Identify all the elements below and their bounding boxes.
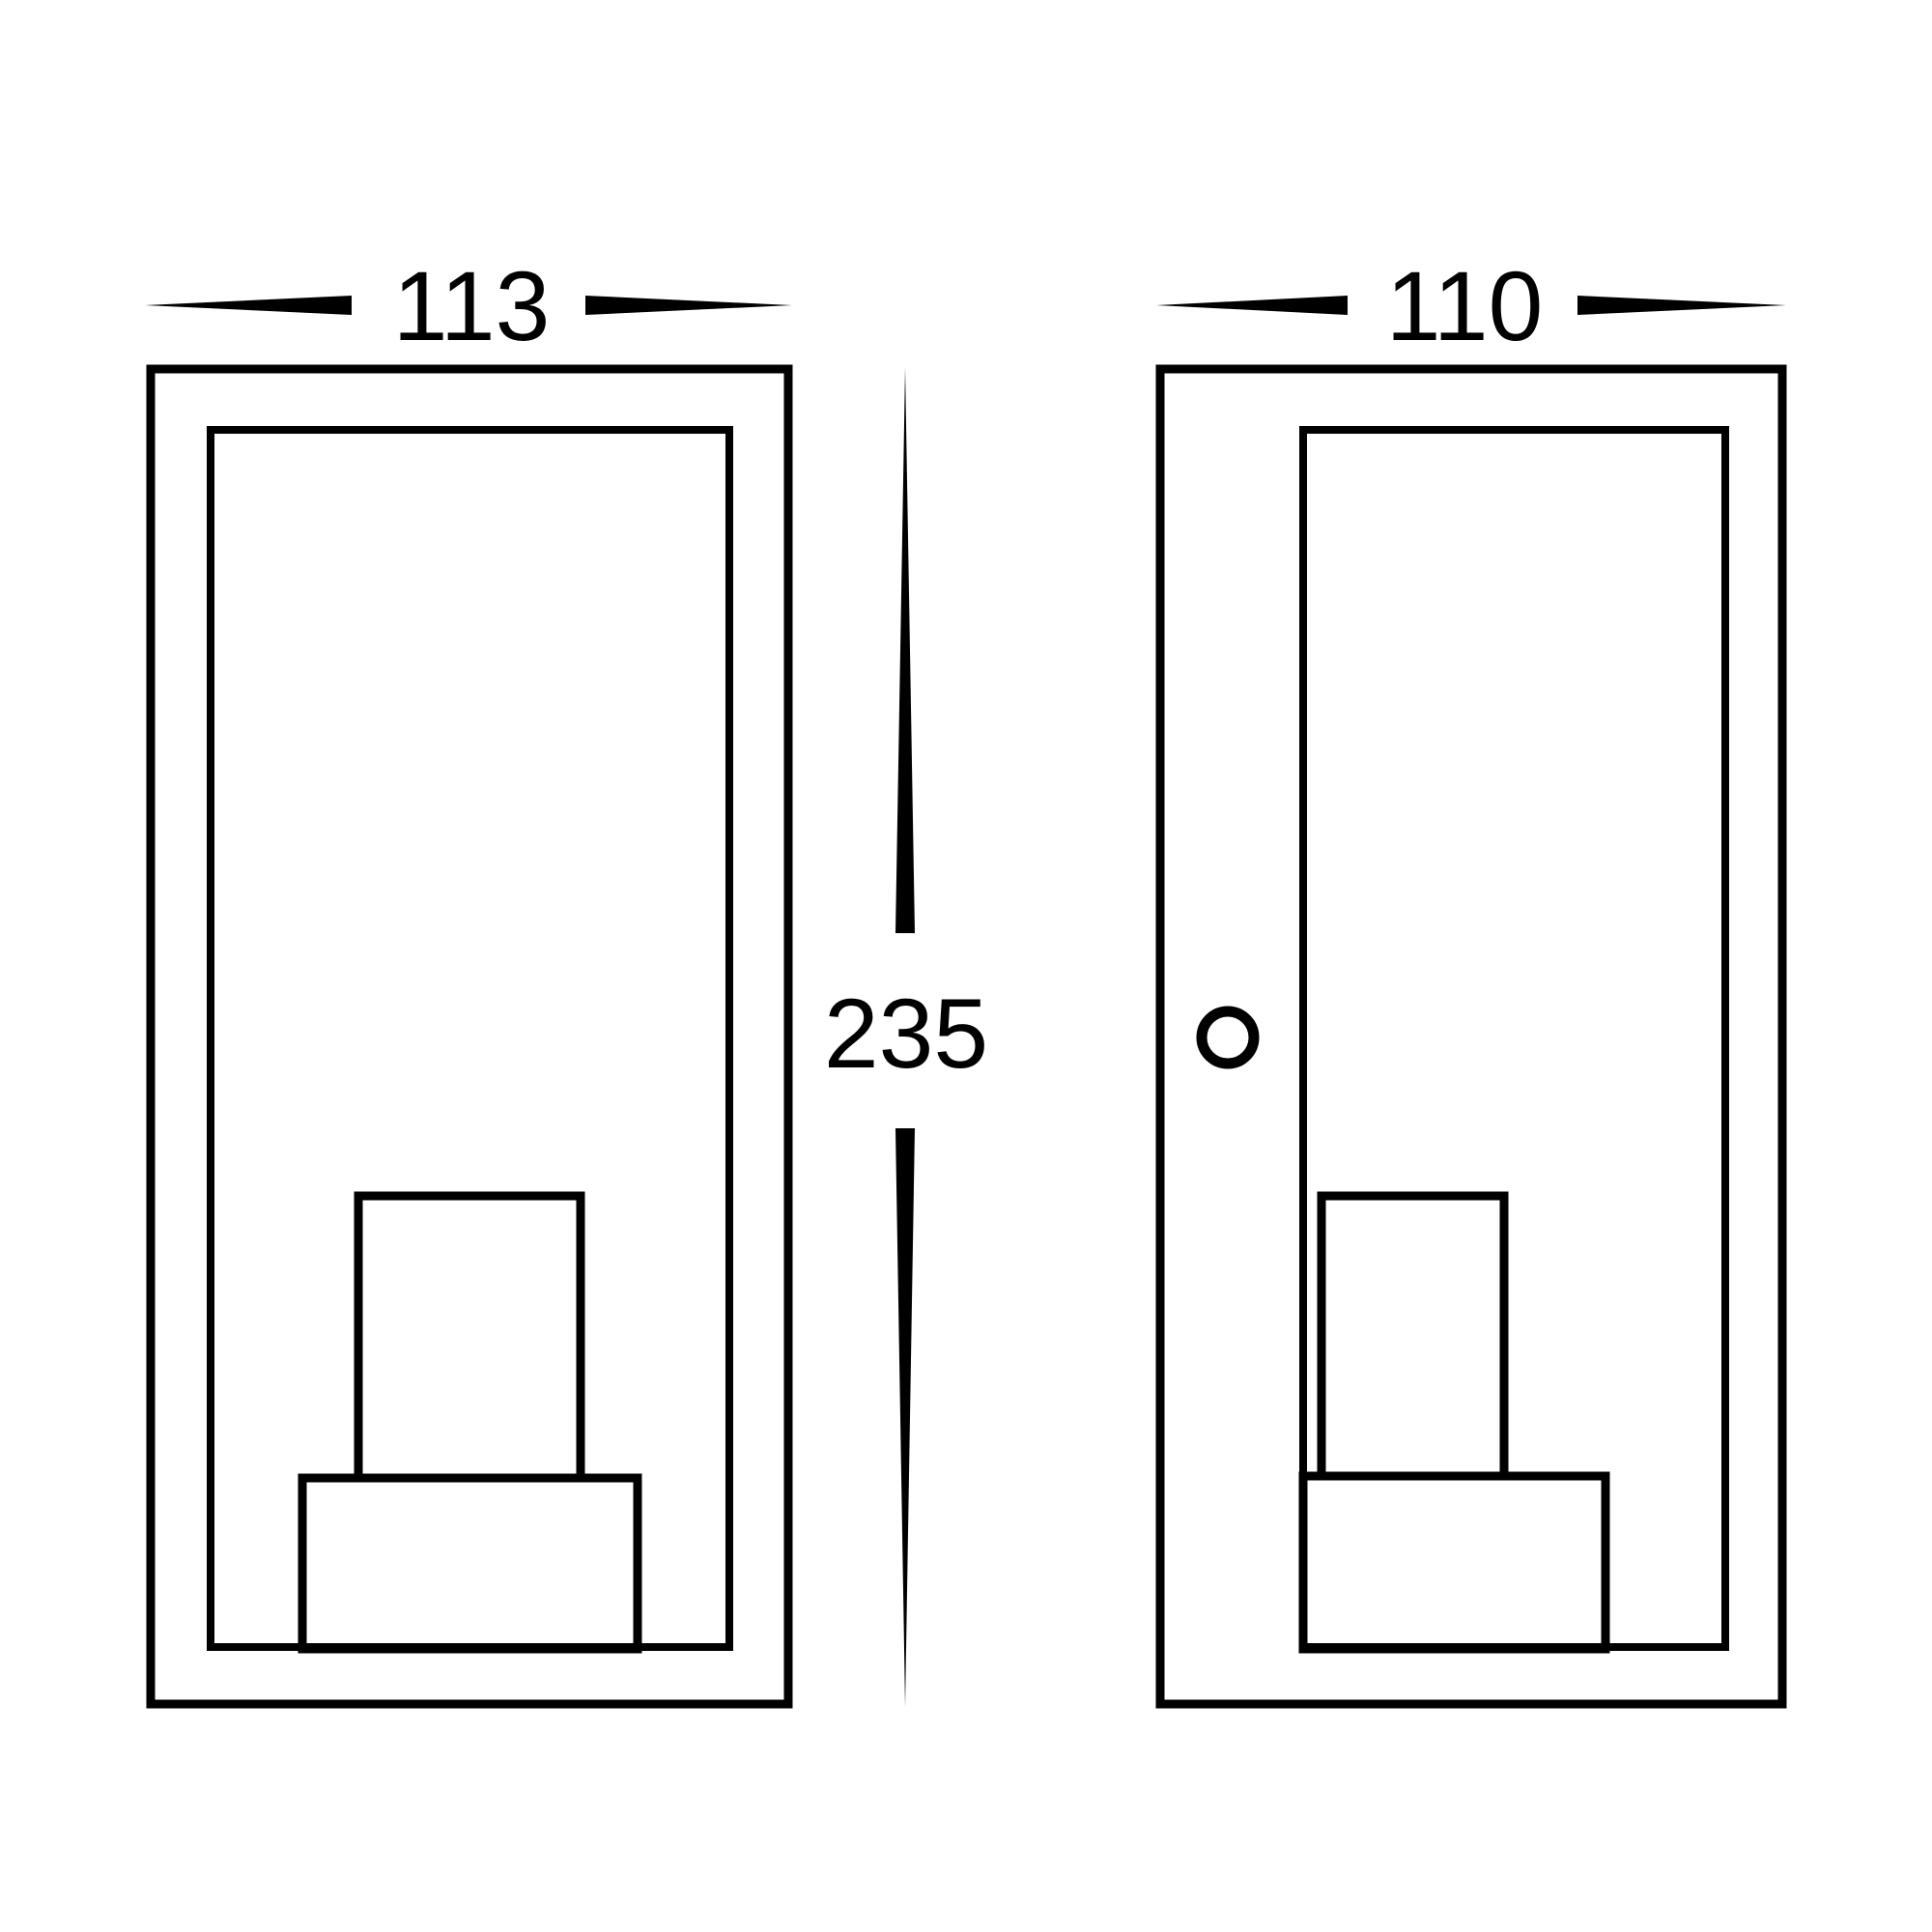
front-lamp-holder-base	[302, 1478, 638, 1649]
dimension-arrow-right	[1577, 296, 1786, 315]
front-width-value: 113	[393, 251, 551, 361]
dimension-arrow-bottom	[895, 1128, 915, 1707]
dimension-arrow-right	[585, 296, 792, 315]
side-depth-dimension: 110	[1156, 251, 1786, 361]
technical-drawing-canvas: 113 110 235	[0, 0, 1932, 1932]
front-outer-frame	[151, 369, 788, 1704]
dimension-arrow-left	[1156, 296, 1348, 315]
front-width-dimension: 113	[145, 251, 792, 361]
side-view	[1160, 369, 1782, 1704]
front-view	[151, 369, 788, 1704]
wall-light-dimension-drawing: 113 110 235	[0, 0, 1932, 1932]
height-dimension: 235	[824, 367, 988, 1707]
dimension-arrow-top	[895, 367, 915, 933]
screw-hole-icon	[1202, 1011, 1254, 1064]
height-value: 235	[824, 979, 988, 1089]
side-lamp-holder-stem	[1321, 1196, 1504, 1476]
front-inner-frame	[211, 430, 729, 1647]
dimension-arrow-left	[145, 296, 352, 315]
side-depth-value: 110	[1386, 251, 1544, 361]
front-lamp-holder-stem	[358, 1196, 581, 1478]
side-lamp-holder-base	[1303, 1476, 1605, 1649]
side-inner-frame	[1303, 430, 1725, 1647]
